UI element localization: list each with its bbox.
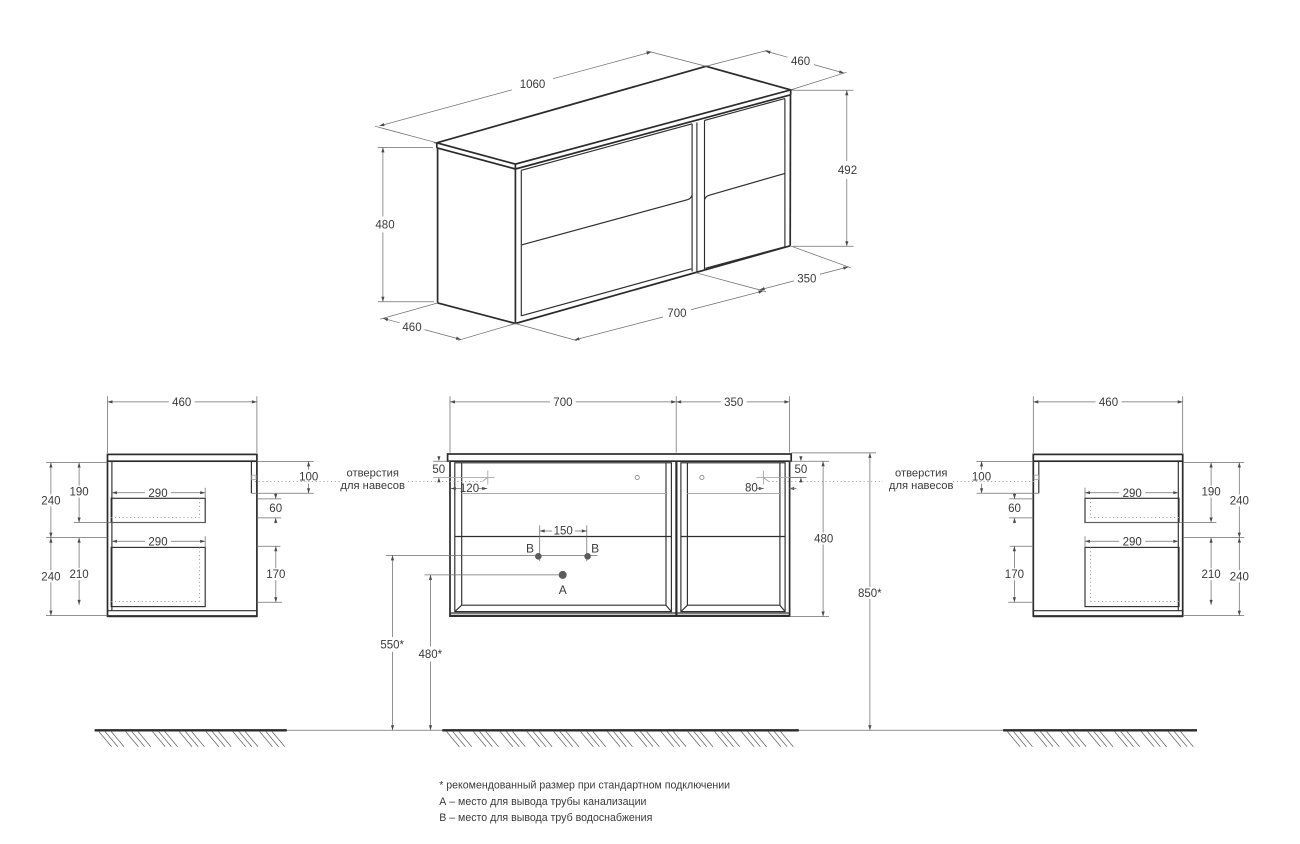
svg-text:150: 150	[554, 526, 573, 538]
svg-text:290: 290	[148, 488, 167, 500]
svg-text:120: 120	[460, 483, 479, 495]
svg-text:B: B	[526, 542, 534, 556]
svg-text:B: B	[591, 542, 599, 556]
svg-text:210: 210	[1202, 569, 1221, 581]
svg-text:* рекомендованный размер при с: * рекомендованный размер при стандартном…	[439, 780, 730, 792]
svg-text:350: 350	[724, 397, 743, 409]
svg-text:700: 700	[667, 308, 686, 320]
svg-text:240: 240	[41, 571, 60, 583]
svg-text:550*: 550*	[380, 639, 404, 651]
svg-text:850*: 850*	[858, 588, 882, 600]
svg-text:290: 290	[1123, 536, 1142, 548]
svg-text:350: 350	[797, 274, 816, 286]
svg-text:170: 170	[266, 569, 285, 581]
svg-text:60: 60	[269, 503, 282, 515]
svg-text:210: 210	[70, 569, 89, 581]
svg-text:для навесов: для навесов	[889, 480, 954, 492]
svg-text:B – место для вывода труб водо: B – место для вывода труб водоснабжения	[439, 812, 652, 824]
svg-text:190: 190	[1202, 487, 1221, 499]
svg-text:492: 492	[838, 165, 857, 177]
svg-text:480*: 480*	[418, 649, 442, 661]
svg-text:отверстия: отверстия	[895, 468, 947, 480]
svg-text:50: 50	[432, 464, 445, 476]
svg-text:A: A	[559, 583, 567, 597]
svg-text:60: 60	[1008, 503, 1021, 515]
svg-text:700: 700	[553, 397, 572, 409]
svg-text:80: 80	[745, 483, 758, 495]
svg-text:190: 190	[70, 487, 89, 499]
svg-text:240: 240	[1230, 571, 1249, 583]
svg-text:460: 460	[172, 397, 191, 409]
svg-text:480: 480	[814, 534, 833, 546]
svg-text:170: 170	[1005, 569, 1024, 581]
svg-text:460: 460	[1099, 397, 1118, 409]
svg-text:460: 460	[402, 322, 421, 334]
svg-text:290: 290	[1123, 488, 1142, 500]
svg-text:460: 460	[791, 56, 810, 68]
svg-text:50: 50	[795, 464, 808, 476]
svg-text:для навесов: для навесов	[340, 480, 405, 492]
svg-text:480: 480	[375, 220, 394, 232]
svg-text:отверстия: отверстия	[347, 468, 399, 480]
svg-text:290: 290	[148, 536, 167, 548]
svg-text:240: 240	[1230, 495, 1249, 507]
svg-text:240: 240	[41, 495, 60, 507]
svg-text:1060: 1060	[520, 79, 546, 91]
svg-text:А – место для вывода трубы кан: А – место для вывода трубы канализации	[439, 796, 646, 808]
